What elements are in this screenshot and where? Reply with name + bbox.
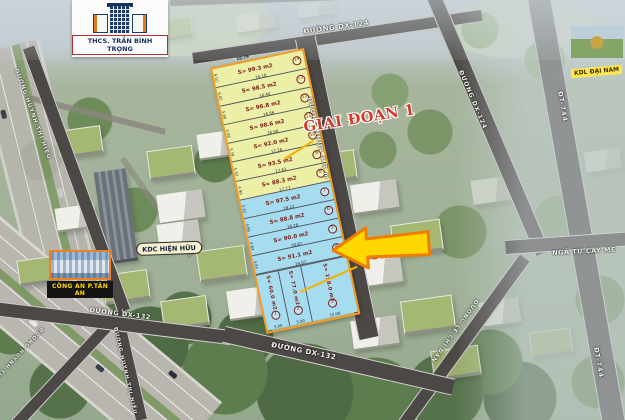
plot-side-dimension: 4.88 <box>245 223 252 232</box>
car <box>0 109 7 119</box>
plot-number-badge: 1 <box>271 310 282 321</box>
plot-area-label: S= 60.0 m2 <box>264 275 277 311</box>
plot-number-badge: 6 <box>323 205 334 216</box>
highlight-arrow <box>329 220 434 273</box>
plot-side-dimension: 4.99 <box>237 185 244 194</box>
plot-number-badge: 14 <box>292 55 303 66</box>
plot-number-badge: 7 <box>319 186 330 197</box>
police-building-photo <box>49 250 111 280</box>
plot-side-dimension: 6.05 <box>217 92 224 101</box>
dai-nam-label: KDL ĐẠI NAM <box>571 65 623 78</box>
building <box>400 295 456 336</box>
existing-residential-label: KDC HIỆN HỮU <box>136 241 202 256</box>
plot-side-dimension: 5.86 <box>221 111 228 120</box>
school-building-icon <box>91 3 149 33</box>
plot-width-dimension: 10.06 <box>329 311 340 317</box>
plot-side-dimension: 5.39 <box>229 148 236 157</box>
police-landmark-card: CÔNG AN P.TÂN AN <box>47 250 113 298</box>
dai-nam-photo <box>571 26 623 58</box>
plot-side-dimension: 5.88 <box>225 129 232 138</box>
plot-side-dimension: 6.02 <box>213 73 220 82</box>
car <box>57 188 64 198</box>
plot-number-badge: 3 <box>327 298 338 309</box>
car <box>168 370 178 380</box>
plot-top-dimension: 16.79 <box>236 54 249 62</box>
car <box>95 363 105 373</box>
plot-number-badge: 13 <box>296 74 307 85</box>
plot-width-dimension: 5.00 <box>296 319 305 325</box>
school-landmark-card: THCS. TRẦN BÌNH TRỌNG <box>72 0 168 57</box>
plot-side-dimension: 5.30 <box>233 167 240 176</box>
plot-side-dimension: 4.84 <box>253 260 260 269</box>
plot-side-dimension: 4.84 <box>249 241 256 250</box>
building <box>350 179 400 215</box>
dai-nam-landmark-card: KDL ĐẠI NAM <box>570 26 624 77</box>
map-scene: 16.79 6.02 S= 99.3 m2 14 16.18 6.05 S= 9… <box>0 0 625 420</box>
plot-number-badge: 2 <box>293 305 304 316</box>
building <box>146 145 196 181</box>
building <box>156 189 206 225</box>
police-label: CÔNG AN P.TÂN AN <box>47 281 113 298</box>
plot-area-label: S= 77.0 m2 <box>287 270 300 306</box>
plot-width-dimension: 5.00 <box>274 324 283 330</box>
plot-side-dimension: 5.42 <box>241 204 248 213</box>
school-label: THCS. TRẦN BÌNH TRỌNG <box>72 35 168 55</box>
building <box>196 245 248 283</box>
